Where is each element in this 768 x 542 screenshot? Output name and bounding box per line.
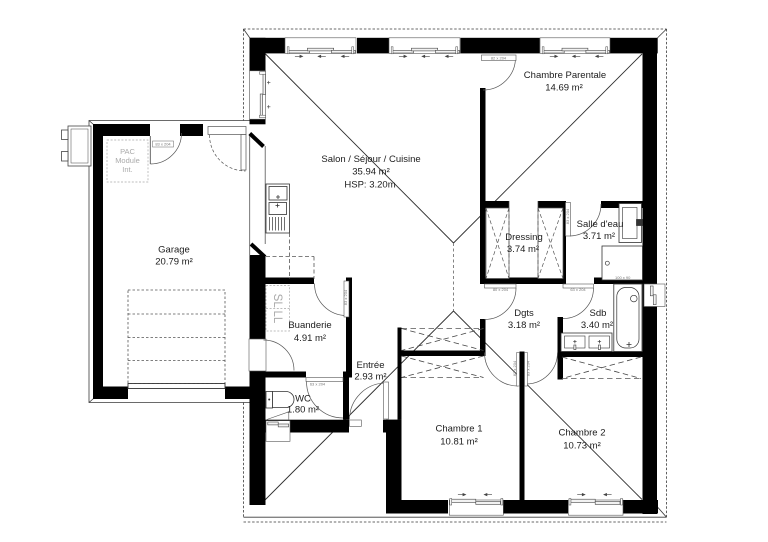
svg-text:63 x 204: 63 x 204 [310, 381, 326, 386]
svg-text:Salon / Séjour / Cuisine: Salon / Séjour / Cuisine [321, 154, 420, 165]
svg-text:83 x 204: 83 x 204 [343, 289, 348, 305]
svg-text:83 x 204: 83 x 204 [155, 142, 171, 147]
svg-text:Module: Module [115, 156, 140, 165]
svg-text:83 x 204: 83 x 204 [565, 208, 570, 224]
svg-text:Sdb: Sdb [590, 308, 607, 319]
svg-text:35.94 m²: 35.94 m² [352, 167, 390, 178]
svg-text:Chambre 1: Chambre 1 [436, 424, 483, 435]
svg-text:Garage: Garage [158, 245, 190, 256]
svg-text:3.74 m²: 3.74 m² [507, 244, 539, 255]
svg-text:14.69 m²: 14.69 m² [545, 83, 583, 94]
svg-text:Int.: Int. [122, 165, 132, 174]
svg-text:Entrée: Entrée [357, 360, 385, 371]
svg-text:1.80 m²: 1.80 m² [287, 405, 319, 416]
svg-text:Dgts: Dgts [514, 308, 534, 319]
svg-text:Dressing: Dressing [505, 232, 543, 243]
svg-text:82 x 204: 82 x 204 [491, 55, 507, 60]
svg-text:20.79 m²: 20.79 m² [155, 257, 193, 268]
svg-text:83 x 204: 83 x 204 [512, 360, 517, 376]
svg-text:3.18 m²: 3.18 m² [508, 320, 540, 331]
svg-text:HSP: 3.20m: HSP: 3.20m [344, 180, 395, 191]
svg-text:Chambre 2: Chambre 2 [559, 428, 606, 439]
svg-text:Chambre Parentale: Chambre Parentale [524, 70, 606, 81]
svg-text:10.73 m²: 10.73 m² [563, 441, 601, 452]
svg-text:3.40 m²: 3.40 m² [581, 320, 613, 331]
svg-text:63 x 204: 63 x 204 [570, 287, 586, 292]
svg-text:10.81 m²: 10.81 m² [440, 437, 478, 448]
svg-text:2.93 m²: 2.93 m² [354, 372, 386, 383]
svg-text:Buanderie: Buanderie [288, 320, 331, 331]
svg-text:100 x 90: 100 x 90 [615, 275, 631, 280]
svg-text:80 x 204: 80 x 204 [493, 287, 509, 292]
svg-text:4.91 m²: 4.91 m² [294, 333, 326, 344]
svg-text:SL LL: SL LL [271, 294, 283, 324]
svg-text:WC: WC [295, 394, 311, 405]
svg-text:Salle d'eau: Salle d'eau [577, 219, 624, 230]
svg-text:83 x 204: 83 x 204 [526, 360, 531, 376]
svg-text:PAC: PAC [120, 147, 135, 156]
svg-text:3.71 m²: 3.71 m² [583, 231, 615, 242]
